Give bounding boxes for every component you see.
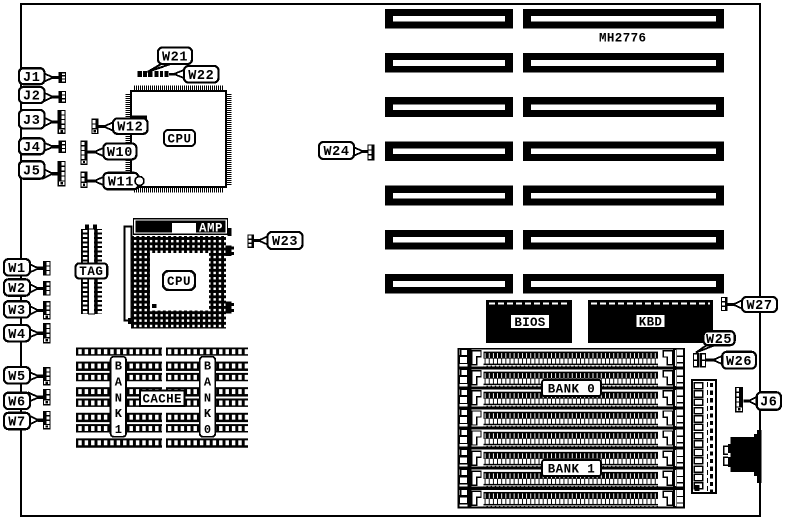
svg-text:1: 1	[115, 423, 122, 437]
svg-text:W4: W4	[8, 328, 25, 343]
svg-text:W27: W27	[746, 299, 772, 314]
svg-text:W12: W12	[117, 121, 143, 136]
svg-text:W2: W2	[8, 282, 25, 297]
svg-text:CACHE: CACHE	[142, 393, 182, 407]
svg-text:A: A	[204, 375, 212, 389]
svg-text:N: N	[204, 391, 211, 405]
svg-text:BANK 1: BANK 1	[548, 463, 595, 477]
svg-text:B: B	[204, 360, 211, 374]
svg-text:A: A	[115, 375, 123, 389]
svg-text:W22: W22	[188, 69, 214, 84]
svg-text:KBD: KBD	[639, 315, 663, 329]
svg-text:W11: W11	[108, 176, 134, 191]
svg-text:W7: W7	[8, 416, 25, 431]
svg-text:W23: W23	[272, 235, 298, 250]
svg-text:J2: J2	[23, 90, 40, 105]
svg-text:J4: J4	[23, 141, 40, 156]
svg-text:J6: J6	[760, 396, 777, 411]
svg-text:MH2776: MH2776	[599, 32, 646, 46]
svg-text:W21: W21	[162, 50, 188, 65]
svg-text:CPU: CPU	[167, 275, 191, 289]
svg-text:W3: W3	[8, 304, 25, 319]
svg-text:CPU: CPU	[167, 133, 191, 147]
svg-text:K: K	[204, 407, 212, 421]
svg-text:N: N	[115, 391, 122, 405]
svg-text:W25: W25	[706, 333, 732, 348]
svg-text:W26: W26	[726, 355, 752, 370]
svg-text:K: K	[115, 407, 123, 421]
svg-text:BANK 0: BANK 0	[548, 383, 595, 397]
svg-text:W10: W10	[107, 146, 133, 161]
svg-text:J1: J1	[23, 71, 40, 86]
svg-text:W24: W24	[323, 145, 349, 160]
svg-text:0: 0	[204, 423, 211, 437]
svg-text:TAG: TAG	[79, 265, 103, 279]
svg-text:J3: J3	[23, 114, 40, 129]
svg-text:W1: W1	[8, 262, 25, 277]
svg-text:AMP: AMP	[199, 222, 223, 236]
svg-text:W5: W5	[8, 370, 25, 385]
svg-text:B: B	[115, 360, 122, 374]
svg-text:BIOS: BIOS	[514, 316, 545, 330]
svg-text:J5: J5	[23, 165, 40, 180]
svg-text:W6: W6	[8, 395, 25, 410]
